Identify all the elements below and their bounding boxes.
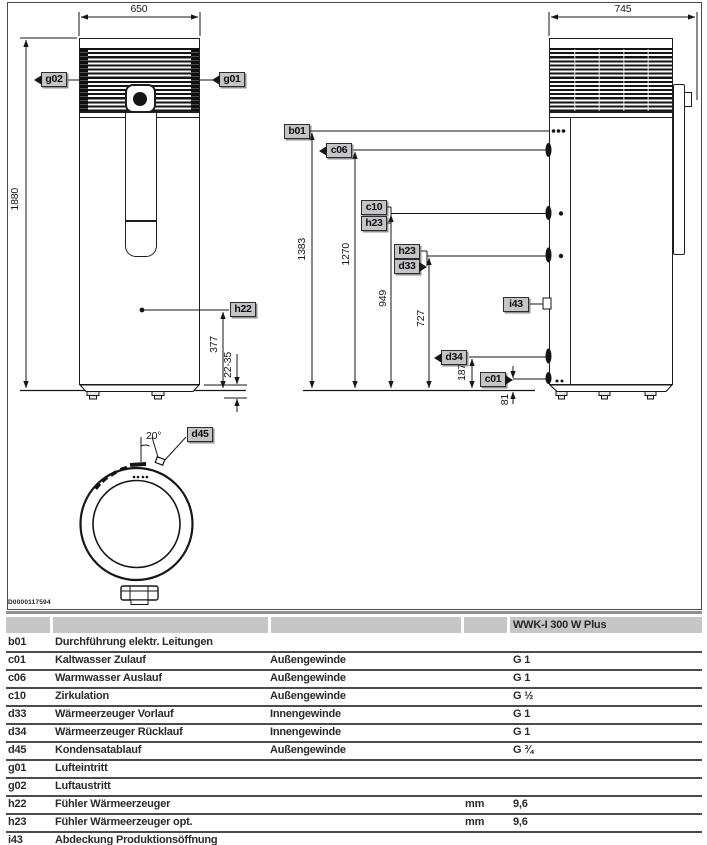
row-value [513, 635, 699, 651]
label-h22: h22 [230, 302, 256, 317]
row-value: G ¾ [513, 743, 699, 759]
dim-top-angle: 20° [146, 430, 161, 442]
row-key: g02 [8, 779, 50, 795]
table-row: c06 Warmwasser Auslauf Außengewinde G 1 [6, 671, 702, 689]
table-row: h23 Fühler Wärmeerzeuger opt. mm 9,6 [6, 815, 702, 833]
row-key: d34 [8, 725, 50, 741]
row-value: 9,6 [513, 815, 699, 831]
label-c10: c10 [361, 200, 387, 215]
table-row: i43 Abdeckung Produktionsöffnung [6, 833, 702, 845]
row-desc: Wärmeerzeuger Vorlauf [55, 707, 267, 723]
row-unit [465, 653, 511, 669]
row-desc: Luftaustritt [55, 779, 267, 795]
row-unit [465, 635, 511, 651]
label-d33: d33 [394, 259, 420, 274]
table-model-header: WWK-I 300 W Plus [510, 617, 702, 633]
dim-side-1270: 1270 [340, 243, 352, 266]
row-value: G ½ [513, 689, 699, 705]
front-grille-left-fins [80, 49, 88, 111]
table-row: d33 Wärmeerzeuger Vorlauf Innengewinde G… [6, 707, 702, 725]
row-unit [465, 761, 511, 777]
dim-side-727: 727 [415, 310, 427, 327]
table-row: c10 Zirkulation Außengewinde G ½ [6, 689, 702, 707]
dim-side-949: 949 [377, 290, 389, 307]
table-header-key-cell [6, 617, 50, 633]
row-key: c10 [8, 689, 50, 705]
row-thread: Außengewinde [270, 653, 462, 669]
dim-front-sensor: 377 [208, 336, 220, 353]
row-thread [270, 815, 462, 831]
row-thread: Innengewinde [270, 725, 462, 741]
drawing-number: D0000117594 [8, 599, 51, 606]
label-h23-lower: h23 [394, 244, 420, 259]
table-header-unit-cell [464, 617, 507, 633]
side-tank-body [549, 112, 673, 385]
dim-side-81: 81 [499, 394, 511, 405]
row-desc: Warmwasser Auslauf [55, 671, 267, 687]
table-header-desc-cell [53, 617, 268, 633]
row-desc: Lufteintritt [55, 761, 267, 777]
label-b01: b01 [284, 124, 310, 139]
dim-side-1383: 1383 [296, 238, 308, 261]
row-value [513, 761, 699, 777]
row-desc: Durchführung elektr. Leitungen [55, 635, 267, 651]
table-row: g02 Luftaustritt [6, 779, 702, 797]
dim-front-height: 1880 [9, 188, 21, 211]
label-d34: d34 [441, 350, 467, 365]
row-thread [270, 761, 462, 777]
table-row: b01 Durchführung elektr. Leitungen [6, 635, 702, 653]
side-panel-clip [684, 92, 692, 107]
row-key: b01 [8, 635, 50, 651]
dim-front-width: 650 [99, 3, 179, 15]
row-desc: Zirkulation [55, 689, 267, 705]
table-row: d45 Kondensatablauf Außengewinde G ¾ [6, 743, 702, 761]
dimension-drawing-page: g02 g01 h22 b01 c06 c10 h23 h23 d33 i43 … [0, 0, 707, 845]
row-thread [270, 797, 462, 813]
row-desc: Fühler Wärmeerzeuger opt. [55, 815, 267, 831]
label-c01: c01 [480, 372, 506, 387]
row-thread: Außengewinde [270, 689, 462, 705]
side-body-seam [550, 117, 672, 118]
dim-front-feet: 22-35 [222, 352, 234, 378]
row-thread [270, 779, 462, 795]
row-key: c01 [8, 653, 50, 669]
front-control-strip [125, 113, 157, 257]
row-thread [270, 635, 462, 651]
side-grille-fan-pattern [551, 49, 671, 111]
row-desc: Kondensatablauf [55, 743, 267, 759]
row-value: G 1 [513, 653, 699, 669]
row-desc: Wärmeerzeuger Rücklauf [55, 725, 267, 741]
row-unit [465, 707, 511, 723]
label-h23-upper: h23 [361, 216, 387, 231]
row-thread: Innengewinde [270, 707, 462, 723]
row-key: i43 [8, 833, 50, 845]
row-unit [465, 833, 511, 845]
row-unit: mm [465, 815, 511, 831]
row-thread: Außengewinde [270, 743, 462, 759]
row-unit [465, 779, 511, 795]
label-g01: g01 [219, 72, 245, 87]
row-key: g01 [8, 761, 50, 777]
label-c06: c06 [326, 143, 352, 158]
row-value: G 1 [513, 725, 699, 741]
row-desc: Fühler Wärmeerzeuger [55, 797, 267, 813]
row-value [513, 779, 699, 795]
row-value: G 1 [513, 671, 699, 687]
table-top-rule [6, 611, 702, 614]
row-unit [465, 743, 511, 759]
row-value: G 1 [513, 707, 699, 723]
label-g02: g02 [41, 72, 67, 87]
row-key: h22 [8, 797, 50, 813]
row-unit [465, 671, 511, 687]
row-value [513, 833, 699, 845]
row-unit: mm [465, 797, 511, 813]
row-desc: Abdeckung Produktionsöffnung [55, 833, 267, 845]
row-unit [465, 725, 511, 741]
table-header-thread-cell [271, 617, 461, 633]
table-row: c01 Kaltwasser Zulauf Außengewinde G 1 [6, 653, 702, 671]
row-desc: Kaltwasser Zulauf [55, 653, 267, 669]
label-d45: d45 [187, 427, 213, 442]
row-thread [270, 833, 462, 845]
row-unit [465, 689, 511, 705]
row-key: h23 [8, 815, 50, 831]
table-row: h22 Fühler Wärmeerzeuger mm 9,6 [6, 797, 702, 815]
table-row: d34 Wärmeerzeuger Rücklauf Innengewinde … [6, 725, 702, 743]
front-strip-divider [126, 220, 156, 222]
table-header-model-cell: WWK-I 300 W Plus [510, 617, 702, 633]
label-i43: i43 [503, 297, 529, 312]
front-fan-hub-icon [133, 92, 147, 106]
row-key: d45 [8, 743, 50, 759]
front-grille-right-fins [191, 49, 199, 111]
dim-side-depth: 745 [583, 3, 663, 15]
table-row: g01 Lufteintritt [6, 761, 702, 779]
row-value: 9,6 [513, 797, 699, 813]
dim-side-187: 187 [456, 364, 468, 381]
side-profile-edge [570, 118, 571, 384]
row-thread: Außengewinde [270, 671, 462, 687]
side-front-panel [673, 84, 685, 255]
row-key: d33 [8, 707, 50, 723]
row-key: c06 [8, 671, 50, 687]
